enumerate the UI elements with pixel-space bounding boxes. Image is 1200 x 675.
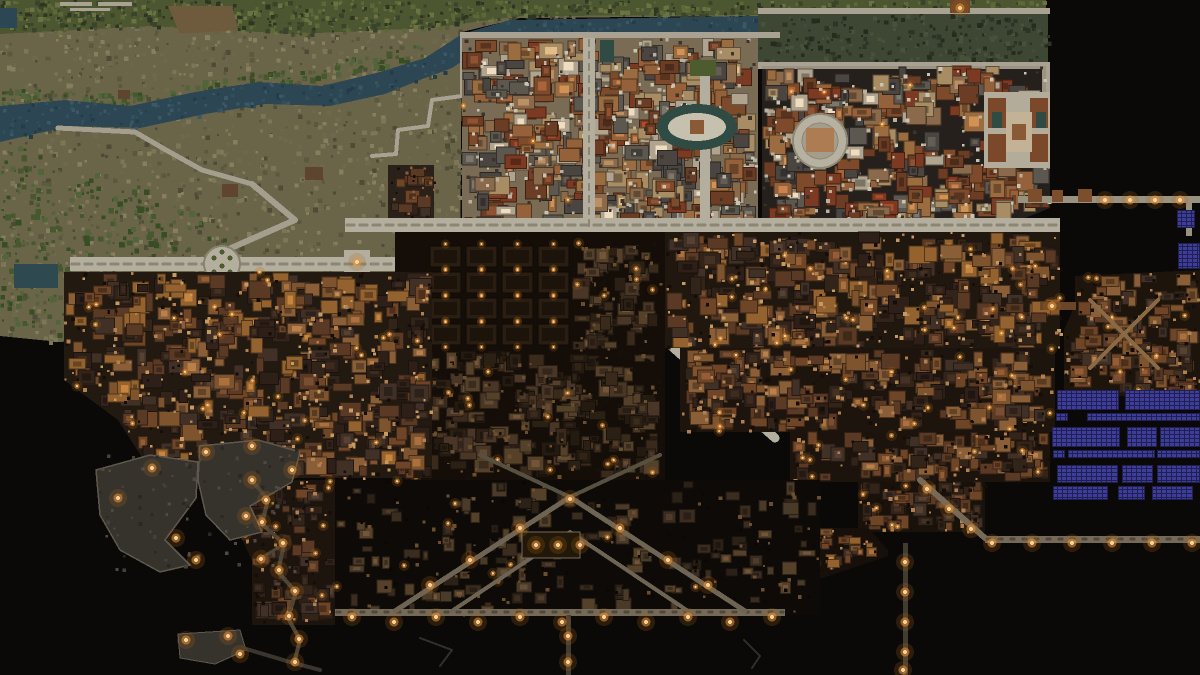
temple-altar — [1012, 124, 1026, 140]
industrial-right-mid — [680, 344, 1057, 437]
industrial-right-north — [665, 232, 1065, 351]
round-plaza-furnace — [806, 128, 834, 152]
map-canvas — [0, 0, 1200, 675]
northeast-rail-structures — [1028, 189, 1092, 202]
east-outpost-cluster — [1064, 270, 1200, 396]
industrial-right-south — [790, 430, 1051, 485]
oval-moat-shrine — [690, 120, 704, 134]
corner-pond — [0, 8, 17, 28]
dirt-patch — [168, 6, 238, 34]
game-map-viewport[interactable] — [0, 0, 1200, 675]
northwest-lobe — [388, 165, 436, 219]
